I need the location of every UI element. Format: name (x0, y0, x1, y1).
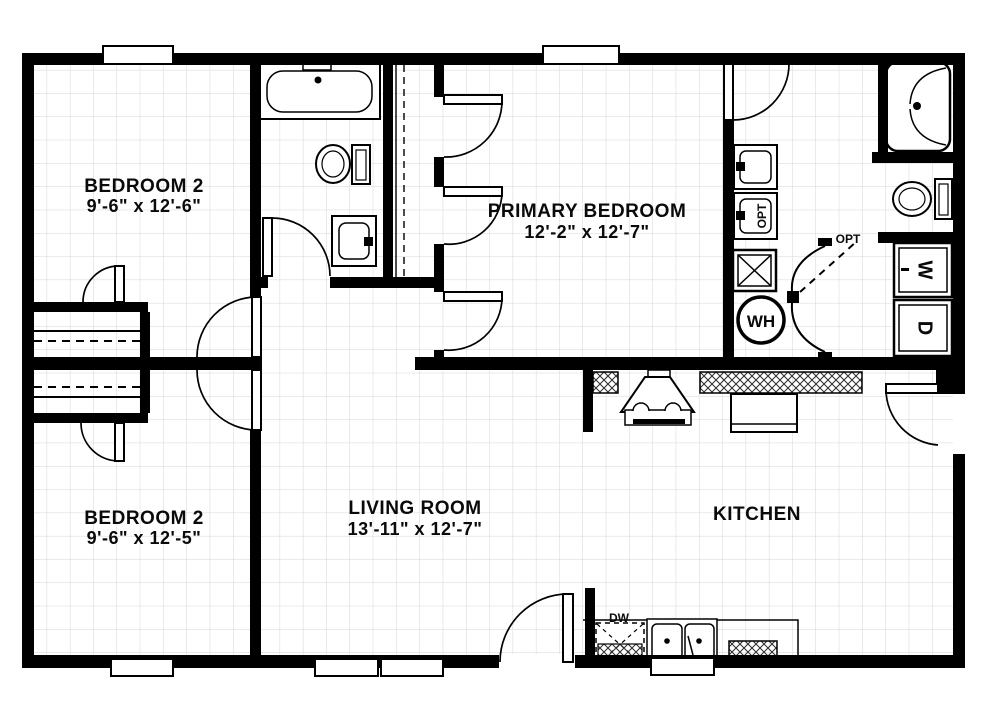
washer-label: W (914, 261, 936, 280)
closet-wall (33, 302, 148, 312)
closet-wall (140, 370, 150, 413)
interior-wall (723, 120, 734, 357)
dryer-label: D (914, 321, 936, 335)
room-label-bedroom2-lower: BEDROOM 2 (84, 508, 204, 529)
window (543, 46, 619, 64)
interior-wall (330, 277, 444, 288)
window (315, 659, 378, 676)
interior-wall (878, 232, 953, 243)
faucet-icon (364, 237, 373, 246)
interior-wall (250, 277, 268, 288)
furnace (733, 250, 776, 291)
dishwasher-label: DW (609, 611, 630, 625)
interior-wall (434, 244, 444, 292)
interior-wall (383, 53, 393, 277)
interior-wall (250, 430, 261, 656)
toilet (316, 145, 370, 184)
interior-wall (415, 357, 965, 370)
water-heater-label: WH (747, 312, 775, 331)
bathtub-drain (315, 77, 322, 84)
room-dims-bedroom2-upper: 9'-6" x 12'-6" (87, 196, 202, 216)
interior-wall (22, 357, 262, 370)
interior-wall (434, 53, 444, 97)
window (651, 658, 714, 675)
refrigerator (731, 394, 797, 432)
room-dims-primary-bedroom: 12'-2" x 12'-7" (524, 222, 649, 242)
exterior-wall-right (953, 53, 965, 392)
faucet-icon (736, 211, 745, 220)
room-label-living-room: LIVING ROOM (348, 498, 481, 519)
interior-wall (583, 357, 593, 432)
closet-wall (140, 312, 150, 357)
washer: W (894, 243, 952, 297)
room-dims-bedroom2-lower: 9'-6" x 12'-5" (87, 528, 202, 548)
double-vanity: OPT (734, 145, 777, 239)
oven-handle (633, 419, 685, 424)
dryer: D (894, 300, 952, 356)
exterior-wall-right (953, 454, 965, 668)
interior-wall (872, 152, 953, 163)
faucet-icon (736, 162, 745, 171)
counter-hatch (700, 372, 862, 393)
window (111, 659, 173, 676)
floor-plan-drawing: OPT WH W D (0, 0, 1000, 709)
interior-wall (878, 53, 888, 160)
vanity-sink (332, 216, 376, 266)
room-label-primary-bedroom: PRIMARY BEDROOM (488, 201, 687, 222)
window (103, 46, 173, 64)
room-dims-living-room: 13'-11" x 12'-7" (348, 519, 483, 539)
window (381, 659, 443, 676)
counter-hatch (593, 372, 618, 393)
interior-wall (434, 157, 444, 187)
room-label-kitchen: KITCHEN (713, 504, 801, 525)
interior-wall (585, 588, 595, 656)
primary-toilet (893, 179, 952, 219)
interior-wall (250, 53, 261, 297)
water-heater: WH (738, 297, 784, 343)
interior-wall (936, 370, 965, 394)
floor-plan-page: OPT WH W D (0, 0, 1000, 709)
room-label-bedroom2-upper: BEDROOM 2 (84, 176, 204, 197)
optional-sink-label: OPT (755, 203, 769, 228)
optional-door-label: OPT (836, 232, 861, 246)
shower-drain (913, 102, 921, 110)
corner-shower (886, 62, 950, 151)
closet-wall (33, 413, 148, 423)
